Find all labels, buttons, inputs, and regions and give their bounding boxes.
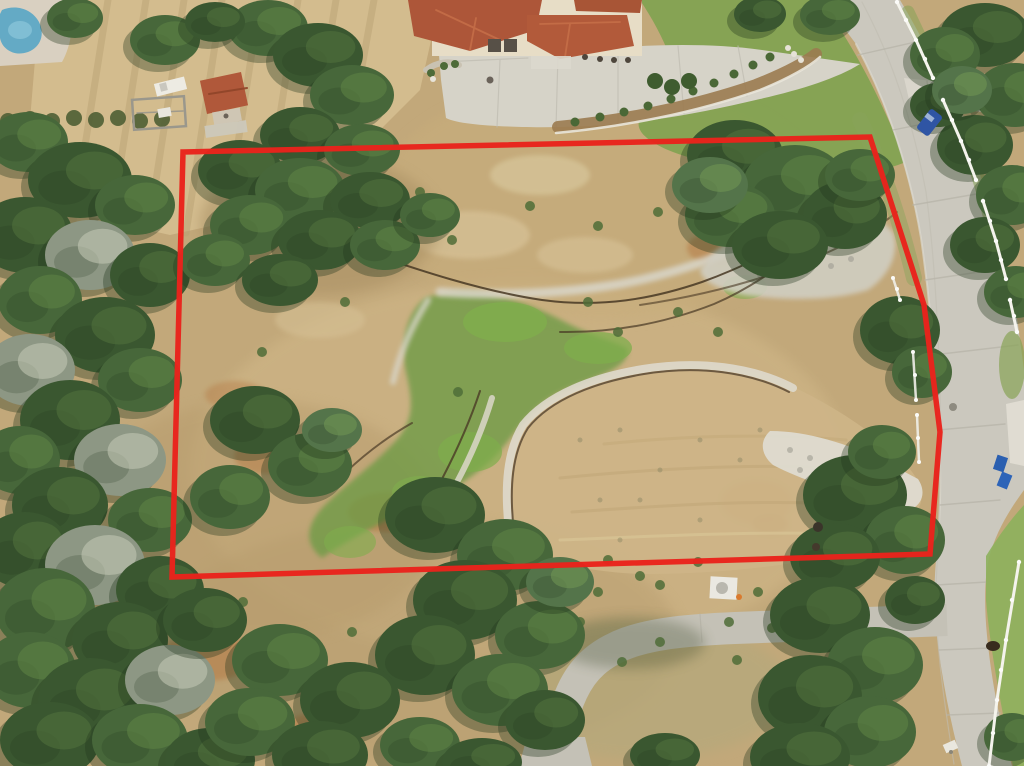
ground-11: [490, 155, 590, 195]
tree-highlight: [753, 1, 782, 19]
tree-highlight: [194, 596, 240, 628]
tree-highlight: [207, 7, 240, 27]
tree-highlight: [823, 532, 873, 566]
house-roof-top: [574, 0, 642, 13]
tree-highlight: [807, 587, 862, 625]
ground-27: [324, 526, 376, 558]
tree-highlight: [337, 672, 392, 710]
tree-highlight: [67, 3, 98, 23]
tree-highlight: [954, 72, 987, 96]
roadside-objects-16: [949, 750, 953, 754]
driveway-fountain: [487, 77, 494, 84]
tree-highlight: [936, 34, 975, 62]
ground-10: [537, 237, 633, 273]
structures-3: [8, 21, 32, 39]
tree-highlight: [57, 390, 112, 430]
manhole: [949, 403, 957, 411]
ground-24: [564, 332, 632, 364]
tree-highlight: [32, 579, 87, 621]
entry-pad: [531, 56, 571, 69]
tree-highlight: [108, 433, 159, 469]
tree-highlight: [528, 610, 578, 644]
tree-highlight: [352, 131, 394, 157]
tree-highlight: [700, 164, 742, 192]
tree-highlight: [158, 654, 208, 689]
tree-highlight: [219, 473, 263, 505]
tree-highlight: [796, 666, 853, 708]
roads-7: [999, 331, 1024, 399]
dog: [986, 641, 1000, 651]
tree-highlight: [412, 625, 467, 665]
tree-highlight: [451, 570, 508, 610]
tree-highlight: [858, 705, 909, 741]
tree-highlight: [17, 120, 61, 150]
tree-highlight: [422, 487, 477, 525]
tree-highlight: [267, 633, 320, 669]
ground-23: [463, 302, 547, 342]
aerial-photo-stage: [0, 0, 1024, 766]
structures-12: [224, 114, 229, 119]
tree-highlight: [324, 414, 357, 436]
tree-highlight: [656, 739, 695, 761]
tree-highlight: [270, 261, 312, 287]
tree-highlight: [767, 220, 820, 254]
orange-marker: [736, 594, 742, 600]
tree-highlight: [139, 496, 185, 528]
tree-highlight: [307, 730, 360, 764]
tree-highlight: [47, 477, 100, 515]
tree-highlight: [18, 343, 68, 379]
garage-door-1: [488, 39, 501, 52]
tree-highlight: [973, 11, 1023, 43]
tree-highlight: [206, 241, 245, 267]
tree-highlight: [129, 356, 175, 388]
tree-highlight: [873, 432, 910, 459]
tree-highlight: [965, 123, 1007, 153]
tree-highlight: [341, 73, 387, 103]
tree-highlight: [862, 637, 915, 675]
tree-highlight: [787, 732, 842, 766]
tree-highlight: [306, 31, 356, 63]
tree-highlight: [492, 528, 545, 564]
tree-highlight: [238, 697, 288, 731]
garage-door-2: [504, 39, 517, 52]
tree-highlight: [907, 582, 940, 606]
lot-equipment-1: [813, 522, 823, 532]
tree-highlight: [92, 307, 147, 345]
tree-highlight: [29, 275, 75, 309]
well-head: [716, 582, 728, 594]
tree-highlight: [422, 199, 455, 221]
tree-highlight: [409, 724, 453, 752]
tree-highlight: [359, 179, 403, 207]
tree-highlight: [822, 0, 855, 20]
lot-equipment-2: [812, 543, 820, 551]
tree-highlight: [37, 712, 92, 750]
tree-highlight: [243, 395, 293, 429]
tree-highlight: [9, 435, 53, 469]
structures-26: [430, 76, 436, 82]
tree-highlight: [107, 612, 160, 650]
tree-highlight: [534, 698, 578, 728]
aerial-lot-photo: [0, 0, 1024, 766]
tree-highlight: [239, 203, 283, 233]
tree-highlight: [124, 183, 168, 213]
tree-highlight: [289, 114, 333, 142]
